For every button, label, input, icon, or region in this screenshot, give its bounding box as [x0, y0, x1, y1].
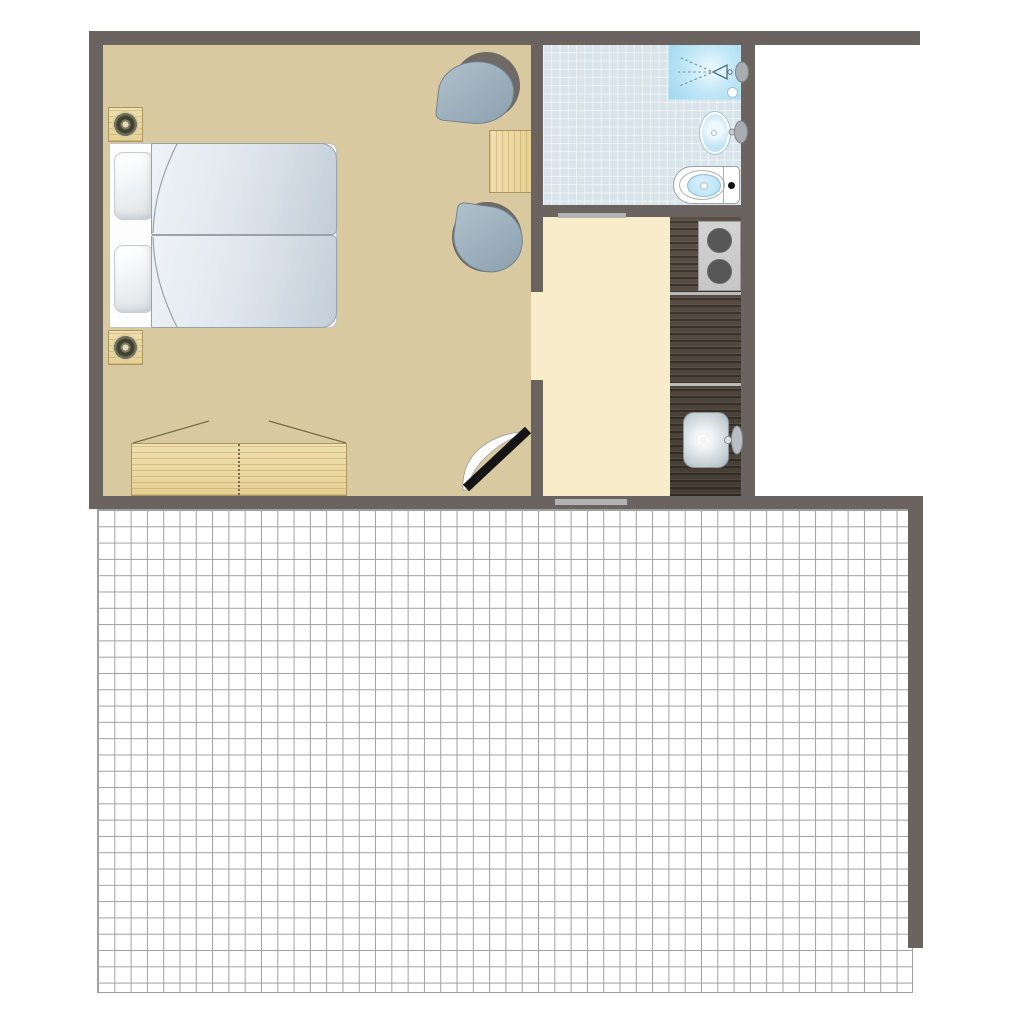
- wall-top: [89, 31, 920, 45]
- wall-bedroom-kitchen-upper: [531, 217, 543, 292]
- wall-left: [89, 31, 103, 509]
- doorway-threshold: [531, 292, 543, 380]
- lamp-icon-bottom: [112, 334, 139, 361]
- wardrobe-door-split: [238, 444, 240, 495]
- pillow-bottom: [114, 245, 154, 313]
- wall-bottom: [89, 496, 923, 509]
- bathroom-sliding-door: [558, 213, 626, 218]
- duvet-top: [151, 143, 337, 235]
- shower-drain: [727, 87, 738, 98]
- wall-terrace-right: [908, 496, 923, 948]
- kitchen-sink-drain: [698, 435, 708, 445]
- counter-divider-2: [670, 383, 741, 386]
- toilet-flush-hole: [700, 182, 708, 190]
- toilet-tank-line: [723, 167, 724, 203]
- floor-plan: [0, 0, 1024, 1024]
- duvet-bottom: [151, 235, 337, 328]
- kitchen-window: [555, 499, 627, 505]
- wall-right: [741, 31, 755, 509]
- wall-bedroom-bathroom: [531, 31, 543, 217]
- washbasin-drain: [711, 130, 717, 136]
- side-table: [489, 130, 533, 193]
- terrace-floor: [97, 509, 913, 993]
- toilet-button: [728, 182, 735, 189]
- lamp-icon-top: [112, 111, 139, 138]
- counter-divider-1: [670, 292, 741, 295]
- burner-bottom: [707, 259, 732, 284]
- pillow-top: [114, 152, 154, 220]
- burner-top: [707, 228, 732, 253]
- wall-bedroom-kitchen-lower: [531, 380, 543, 496]
